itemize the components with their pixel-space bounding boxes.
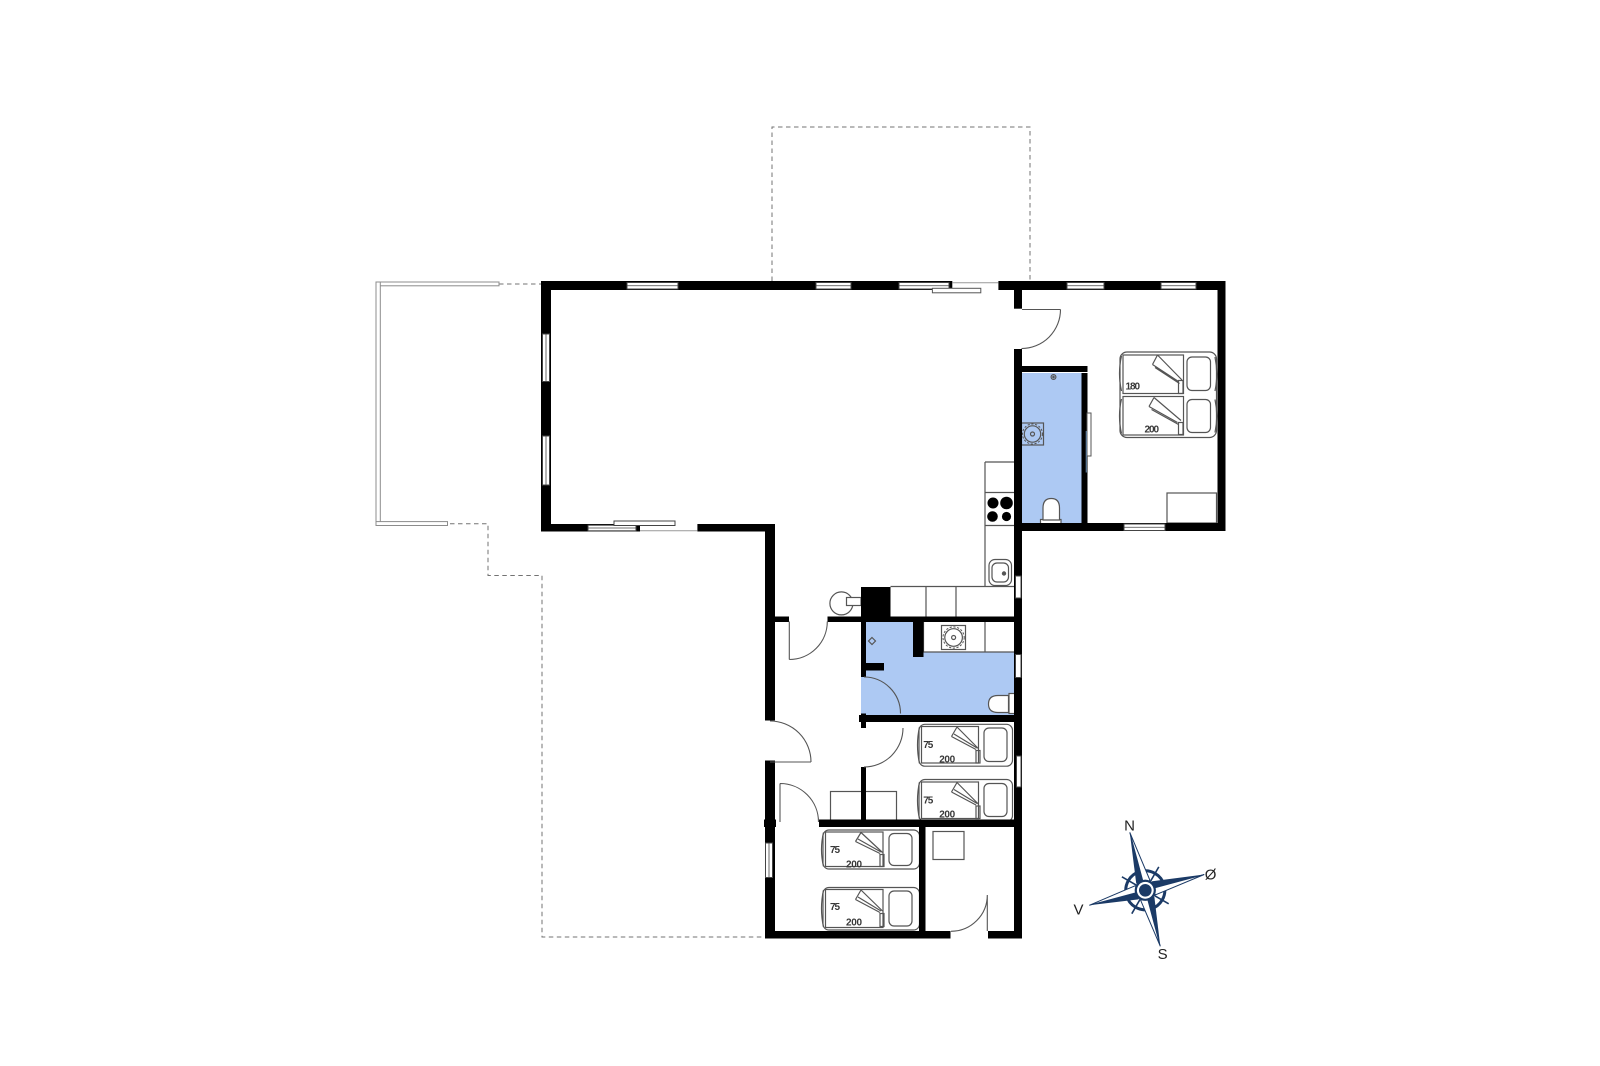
svg-text:75: 75 [923,740,933,751]
svg-text:180: 180 [1126,382,1141,393]
svg-text:200: 200 [1145,425,1160,436]
svg-text:200: 200 [939,810,955,821]
svg-text:75: 75 [830,902,840,913]
svg-text:V: V [1073,901,1083,918]
svg-text:N: N [1124,817,1135,834]
svg-text:200: 200 [846,860,862,871]
svg-text:200: 200 [846,918,862,929]
svg-text:200: 200 [939,754,955,765]
svg-text:Ø: Ø [1205,867,1217,884]
svg-text:75: 75 [830,845,840,856]
svg-text:75: 75 [923,796,933,807]
svg-text:S: S [1158,946,1168,963]
